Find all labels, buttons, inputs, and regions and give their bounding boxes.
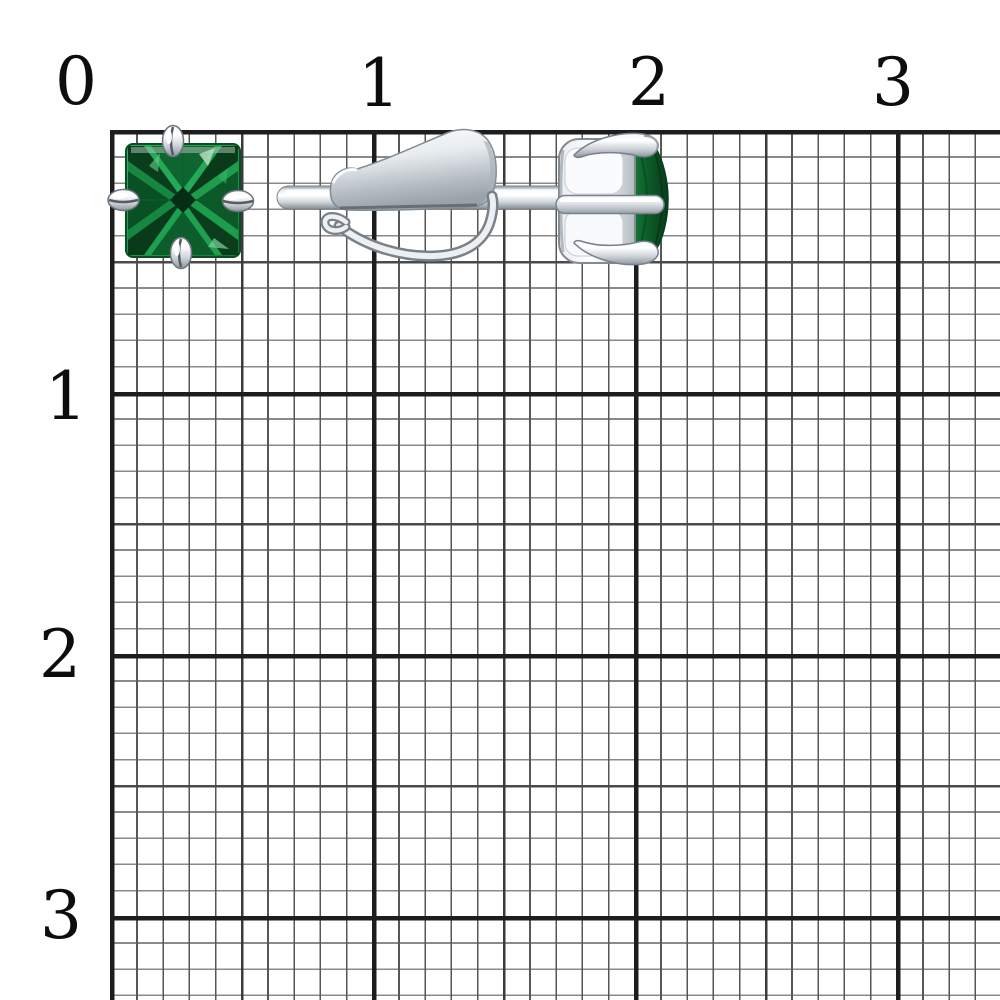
product-photo: 0 1 2 3 1 2 3 — [0, 0, 1000, 1000]
stone-basket — [556, 133, 664, 264]
earrings-illustration — [0, 0, 1000, 1000]
stud-earring-front-view — [108, 126, 254, 269]
prong-right — [223, 191, 254, 212]
butterfly-clasp — [325, 130, 496, 256]
prong-bottom — [171, 238, 192, 269]
stud-earring-side-view — [277, 130, 668, 265]
prong-left — [108, 190, 139, 211]
prong-top — [163, 126, 184, 157]
